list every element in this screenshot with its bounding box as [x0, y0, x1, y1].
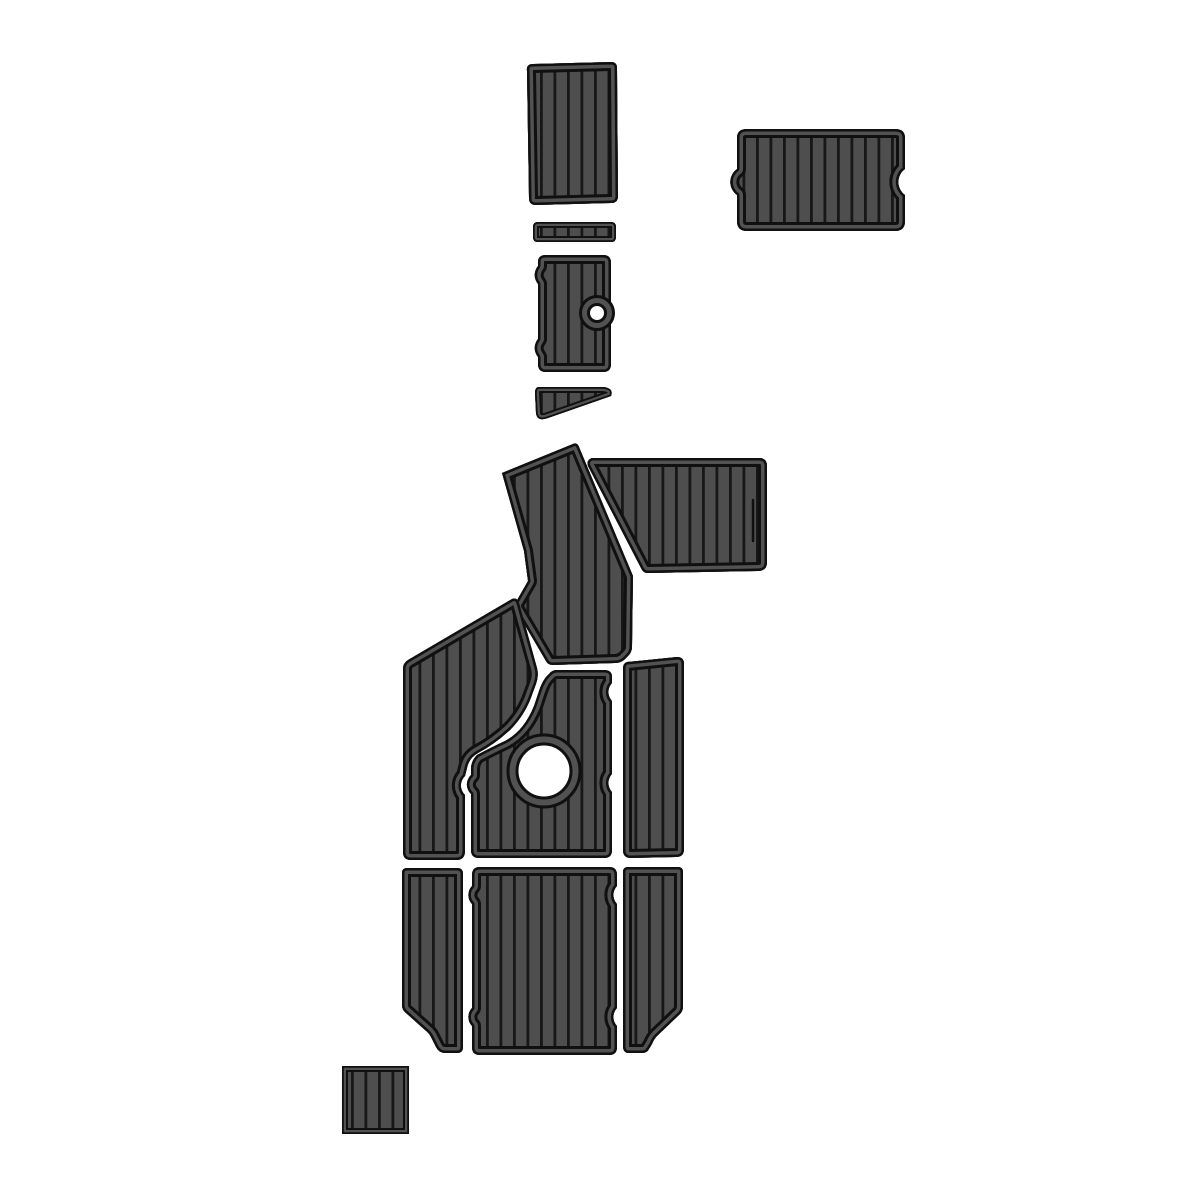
cutout-hole-large	[517, 744, 571, 798]
pad-piece-thin-strip	[533, 222, 616, 242]
pad-piece-top-right-notched	[730, 129, 905, 231]
pad-piece-small-square	[342, 1066, 409, 1134]
cutout-hole-small	[589, 305, 606, 322]
decking-pad-diagram	[0, 0, 1200, 1200]
pad-piece-mid-right	[623, 657, 684, 858]
pad-piece-top-tapered	[527, 62, 618, 205]
pad-piece-bottom-center	[468, 867, 617, 1055]
